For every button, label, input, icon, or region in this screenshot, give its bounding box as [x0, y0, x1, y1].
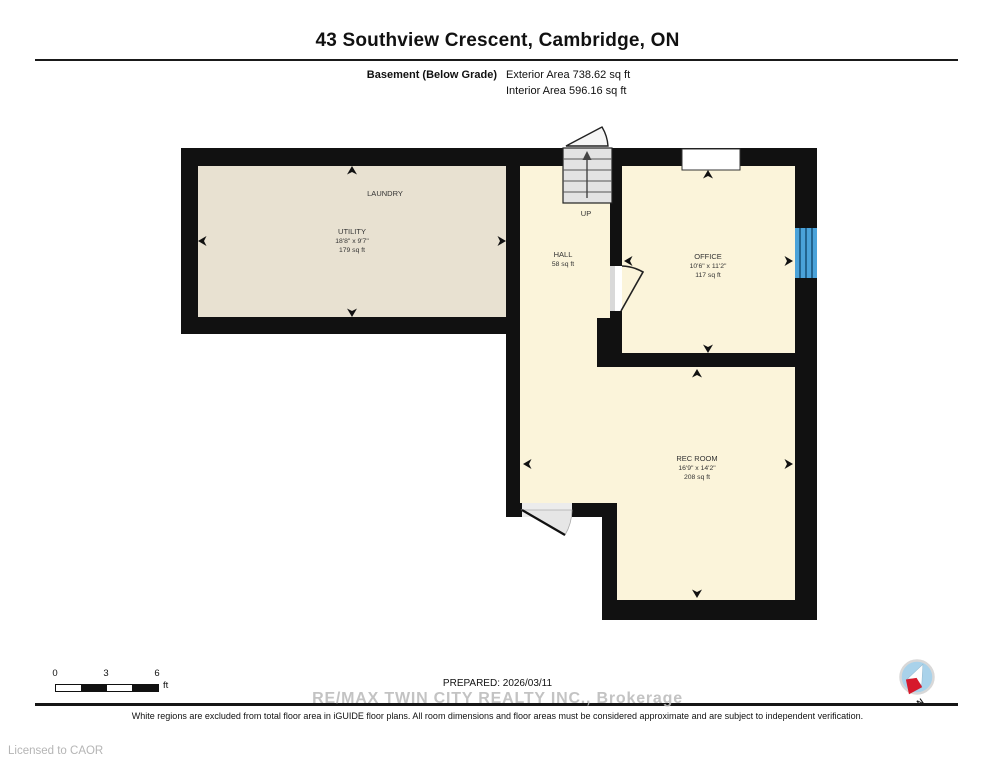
- stair-door-swing: [566, 127, 608, 146]
- exterior-area-text: Exterior Area 738.62 sq ft: [506, 69, 630, 81]
- utility-area: 179 sq ft: [339, 247, 365, 254]
- hall-area: 58 sq ft: [552, 261, 574, 268]
- prepared-date: PREPARED: 2026/03/11: [0, 678, 995, 689]
- page-title: 43 Southview Crescent, Cambridge, ON: [0, 30, 995, 52]
- rec-room-door: [522, 503, 572, 535]
- interior-area-text: Interior Area 596.16 sq ft: [506, 85, 626, 97]
- office-north-window-icon: [682, 149, 740, 170]
- utility-label: UTILITY: [338, 227, 366, 236]
- stairs-up-label: UP: [581, 209, 591, 218]
- license-text: Licensed to CAOR: [8, 745, 103, 757]
- room-interiors: [198, 166, 795, 600]
- staircase: [563, 127, 612, 203]
- brokerage-watermark: RE/MAX TWIN CITY REALTY INC., Brokerage: [0, 690, 995, 708]
- rec-room-dimensions: 16'9" x 14'2": [678, 465, 716, 472]
- floor-label: Basement (Below Grade): [280, 69, 497, 81]
- header-divider: [35, 59, 958, 61]
- hall-floor: [520, 166, 610, 503]
- floorplan-drawing: LAUNDRY UTILITY 18'8" x 9'7" 179 sq ft H…: [140, 110, 860, 650]
- rec-room-floor: [610, 367, 795, 600]
- office-label: OFFICE: [694, 252, 722, 261]
- rec-room-area: 208 sq ft: [684, 474, 710, 481]
- rec-room-label: REC ROOM: [676, 454, 717, 463]
- laundry-label: LAUNDRY: [367, 189, 403, 198]
- utility-dimensions: 18'8" x 9'7": [335, 238, 369, 245]
- hall-label: HALL: [554, 250, 573, 259]
- floorplan-page: 43 Southview Crescent, Cambridge, ON Bas…: [0, 0, 995, 768]
- disclaimer-text: White regions are excluded from total fl…: [0, 711, 995, 721]
- office-area: 117 sq ft: [695, 272, 721, 279]
- office-east-window-icon: [795, 228, 817, 278]
- office-dimensions: 10'6" x 11'2": [690, 263, 727, 270]
